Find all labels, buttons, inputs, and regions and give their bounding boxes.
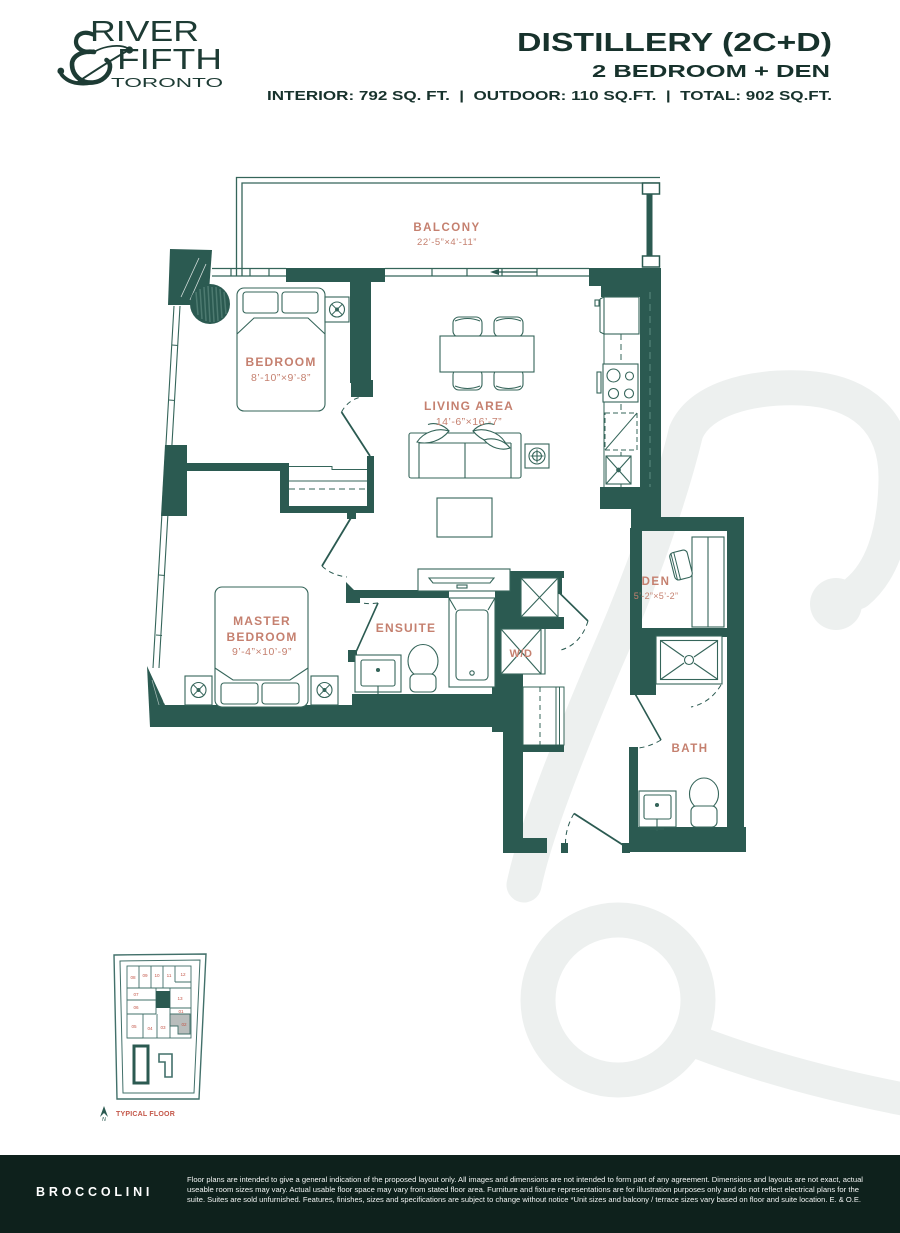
- svg-text:N: N: [102, 1117, 106, 1123]
- svg-text:06: 06: [133, 1005, 139, 1010]
- svg-text:BROCCOLINI: BROCCOLINI: [36, 1185, 153, 1199]
- svg-text:10: 10: [154, 973, 160, 978]
- svg-text:useable room sizes may vary. A: useable room sizes may vary. Actual usab…: [187, 1185, 859, 1194]
- svg-text:MASTER: MASTER: [233, 614, 291, 628]
- svg-text:12: 12: [180, 972, 186, 977]
- svg-text:05: 05: [131, 1024, 137, 1029]
- svg-text:04: 04: [147, 1026, 153, 1031]
- svg-text:BATH: BATH: [671, 743, 708, 755]
- svg-text:suite. Suites are sold unfurni: suite. Suites are sold unfurnished. Feat…: [187, 1195, 861, 1204]
- svg-text:INTERIOR: 792 SQ. FT. | OUTD: INTERIOR: 792 SQ. FT. | OUTDOOR: 110 SQ.…: [267, 89, 832, 103]
- svg-text:14’-6”×16’-7”: 14’-6”×16’-7”: [436, 416, 502, 428]
- svg-text:9’-4”×10’-9”: 9’-4”×10’-9”: [232, 646, 292, 658]
- svg-text:01: 01: [178, 1009, 184, 1014]
- svg-text:22’-5”×4’-11”: 22’-5”×4’-11”: [417, 237, 477, 248]
- svg-text:5’-2”×5’-2”: 5’-2”×5’-2”: [634, 591, 679, 601]
- svg-text:11: 11: [167, 973, 172, 978]
- svg-text:BALCONY: BALCONY: [413, 222, 480, 234]
- svg-text:DEN: DEN: [642, 576, 671, 588]
- svg-text:Floor plans are intended to gi: Floor plans are intended to give a gener…: [187, 1175, 863, 1184]
- svg-text:BEDROOM: BEDROOM: [245, 355, 316, 369]
- svg-text:TORONTO: TORONTO: [111, 76, 223, 90]
- svg-text:09: 09: [142, 973, 148, 978]
- svg-text:03: 03: [160, 1025, 166, 1030]
- svg-text:02: 02: [181, 1022, 187, 1027]
- svg-text:08: 08: [130, 975, 136, 980]
- svg-text:8’-10”×9’-8”: 8’-10”×9’-8”: [251, 372, 311, 384]
- svg-text:DISTILLERY (2C+D): DISTILLERY (2C+D): [517, 27, 832, 57]
- svg-text:FIFTH: FIFTH: [117, 44, 222, 76]
- svg-text:ENSUITE: ENSUITE: [376, 621, 436, 635]
- svg-text:TYPICAL FLOOR: TYPICAL FLOOR: [116, 1109, 175, 1118]
- svg-text:2 BEDROOM + DEN: 2 BEDROOM + DEN: [592, 61, 830, 81]
- svg-text:LIVING AREA: LIVING AREA: [424, 399, 514, 413]
- svg-text:BEDROOM: BEDROOM: [226, 630, 297, 644]
- svg-text:13: 13: [177, 996, 183, 1001]
- svg-text:07: 07: [133, 992, 139, 997]
- svg-text:W/D: W/D: [510, 648, 533, 660]
